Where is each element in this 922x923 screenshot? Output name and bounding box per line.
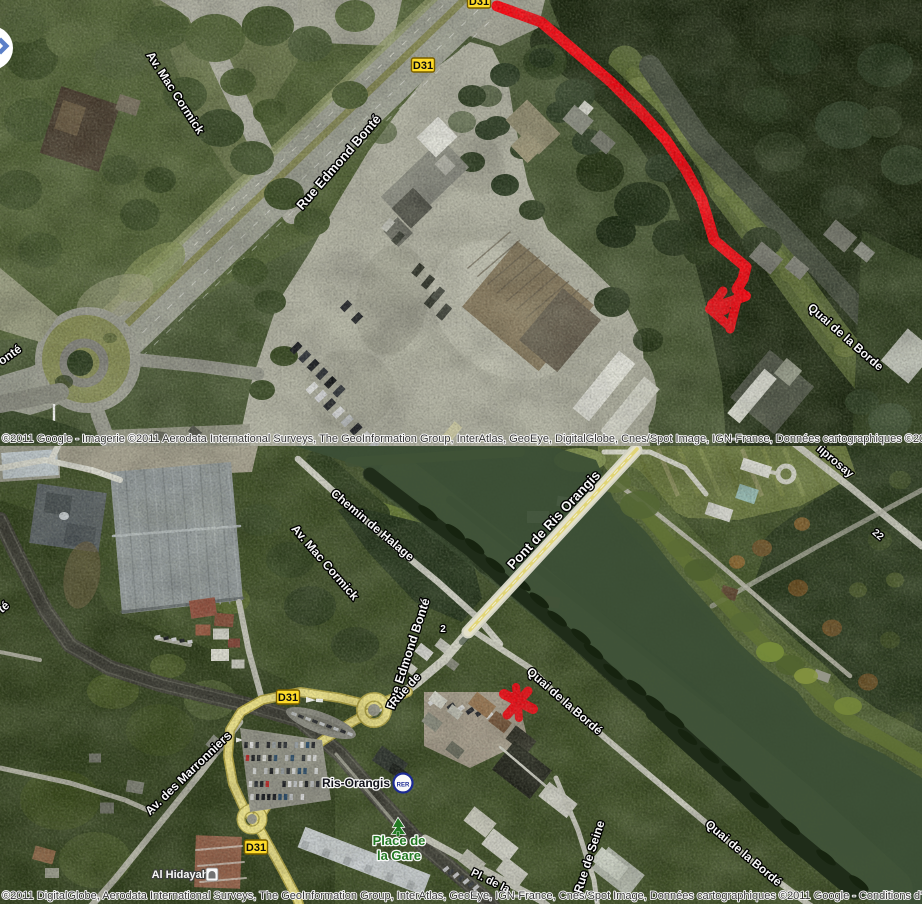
svg-text:Al Hidayah: Al Hidayah [152, 869, 209, 881]
svg-text:D31: D31 [469, 0, 489, 8]
svg-text:RER: RER [397, 783, 410, 789]
svg-text:D31: D31 [246, 842, 266, 854]
svg-text:2: 2 [440, 624, 446, 635]
svg-text:Place de: Place de [373, 833, 426, 848]
svg-text:©2011 DigitalGlobe, Aerodata I: ©2011 DigitalGlobe, Aerodata Internation… [2, 890, 922, 902]
svg-text:©2011 Google - Imagerie ©2011: ©2011 Google - Imagerie ©2011 Aerodata I… [2, 433, 922, 445]
svg-text:D31: D31 [278, 692, 298, 704]
svg-text:D31: D31 [413, 60, 433, 72]
svg-text:Ris-Orangis: Ris-Orangis [322, 776, 390, 790]
svg-text:la Gare: la Gare [377, 848, 421, 863]
